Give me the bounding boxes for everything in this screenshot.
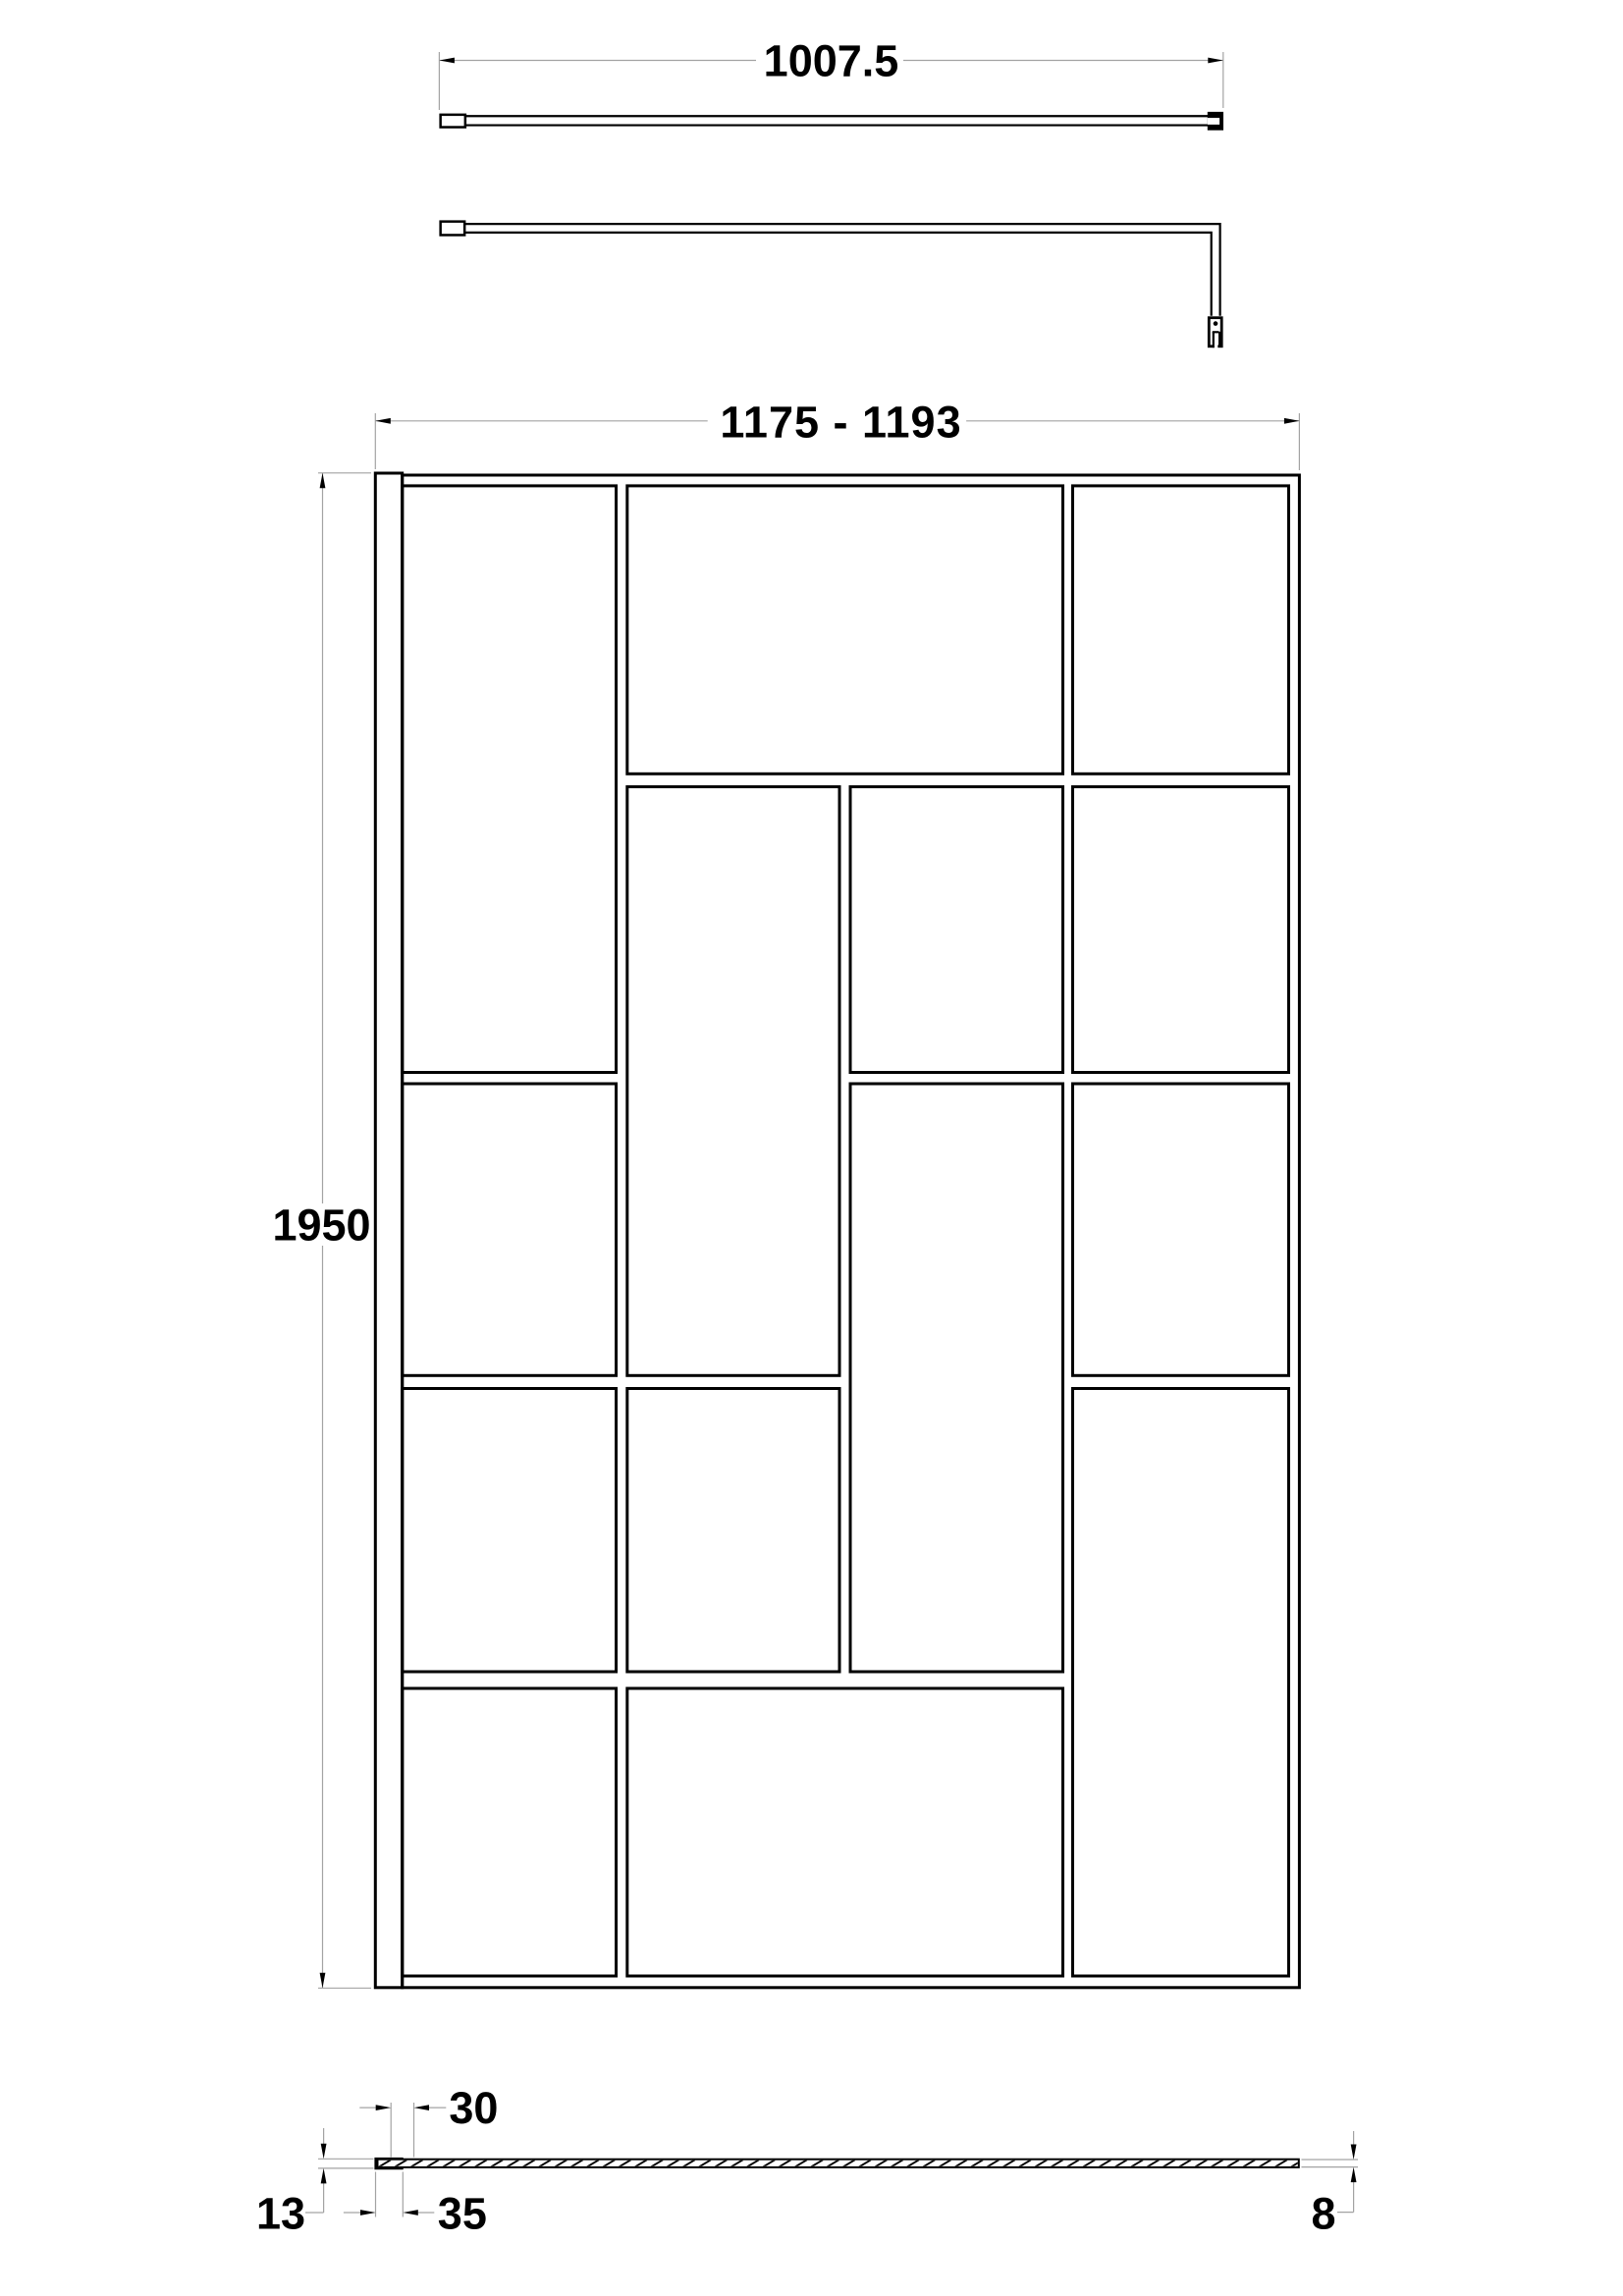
svg-text:1950: 1950 <box>272 1200 370 1250</box>
svg-text:13: 13 <box>256 2189 305 2239</box>
svg-text:1007.5: 1007.5 <box>764 35 899 85</box>
svg-text:35: 35 <box>438 2189 487 2239</box>
svg-text:30: 30 <box>449 2083 498 2133</box>
svg-text:1175 - 1193: 1175 - 1193 <box>720 397 961 447</box>
svg-text:8: 8 <box>1311 2189 1335 2239</box>
